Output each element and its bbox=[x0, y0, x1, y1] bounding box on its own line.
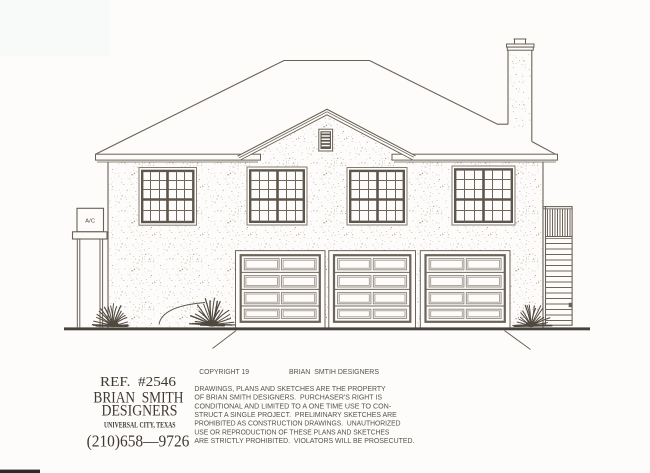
svg-text:USE OR REPRODUCTION OF THESE P: USE OR REPRODUCTION OF THESE PLANS AND S… bbox=[194, 427, 389, 436]
svg-text:STRUCT A SINGLE PROJECT. PREL: STRUCT A SINGLE PROJECT. PRELIMINARY SKE… bbox=[194, 410, 396, 419]
svg-text:PROHIBITED AS CONSTRUCTION DRA: PROHIBITED AS CONSTRUCTION DRAWINGS. UNA… bbox=[194, 419, 401, 428]
svg-text:A/C: A/C bbox=[85, 219, 95, 225]
svg-text:ARE STRICTLY PROHIBITED. VIOL: ARE STRICTLY PROHIBITED. VIOLATORS WILL … bbox=[194, 436, 414, 445]
svg-text:BRIAN SMTIH DESIGNERS: BRIAN SMTIH DESIGNERS bbox=[289, 367, 379, 376]
svg-text:DESIGNERS: DESIGNERS bbox=[102, 403, 178, 420]
svg-text:(210)658—9726: (210)658—9726 bbox=[87, 431, 190, 450]
svg-text:DRAWINGS, PLANS AND SKETCHES A: DRAWINGS, PLANS AND SKETCHES ARE THE PRO… bbox=[194, 384, 385, 393]
svg-text:OF BRIAN SMITH DESIGNERS. PUR: OF BRIAN SMITH DESIGNERS. PURCHASER'S RI… bbox=[194, 393, 382, 402]
svg-text:COPYRIGHT 19: COPYRIGHT 19 bbox=[199, 367, 249, 376]
svg-text:UNIVERSAL CITY, TEXAS: UNIVERSAL CITY, TEXAS bbox=[104, 421, 176, 430]
svg-text:REF. #2546: REF. #2546 bbox=[100, 374, 176, 389]
